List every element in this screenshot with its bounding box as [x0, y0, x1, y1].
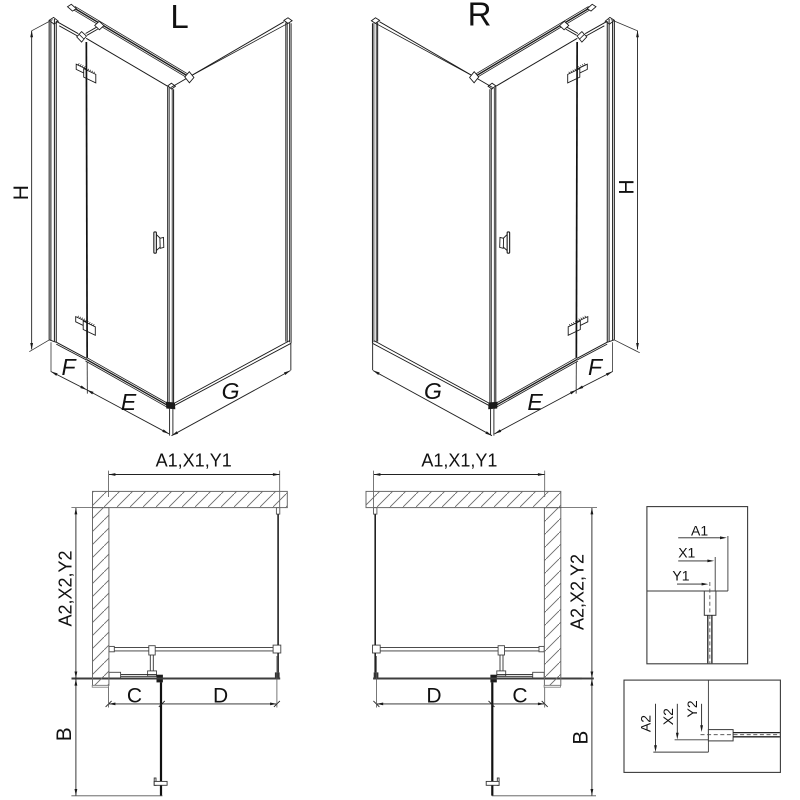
- svg-text:X2: X2: [660, 708, 676, 725]
- svg-text:A2,X2,Y2: A2,X2,Y2: [568, 554, 588, 630]
- svg-text:E: E: [121, 389, 137, 415]
- svg-text:A1,X1,Y1: A1,X1,Y1: [421, 450, 497, 470]
- svg-text:C: C: [127, 685, 142, 708]
- svg-text:A2,X2,Y2: A2,X2,Y2: [56, 550, 76, 626]
- svg-text:X1: X1: [678, 545, 695, 561]
- svg-text:C: C: [512, 685, 527, 708]
- svg-text:H: H: [10, 185, 33, 200]
- svg-text:Y2: Y2: [684, 700, 700, 717]
- svg-text:D: D: [213, 685, 228, 708]
- svg-text:B: B: [570, 731, 593, 745]
- svg-text:Y1: Y1: [672, 568, 689, 584]
- svg-text:F: F: [61, 354, 77, 380]
- svg-text:D: D: [426, 685, 441, 708]
- svg-text:G: G: [424, 378, 442, 404]
- svg-text:L: L: [170, 0, 188, 35]
- svg-text:A2: A2: [638, 715, 654, 732]
- svg-text:F: F: [588, 354, 604, 380]
- svg-text:A1: A1: [691, 523, 708, 539]
- svg-text:E: E: [527, 389, 543, 415]
- svg-text:R: R: [468, 0, 492, 33]
- svg-text:B: B: [53, 727, 76, 741]
- svg-text:H: H: [616, 179, 639, 194]
- svg-text:G: G: [222, 378, 240, 404]
- svg-text:A1,X1,Y1: A1,X1,Y1: [156, 450, 232, 470]
